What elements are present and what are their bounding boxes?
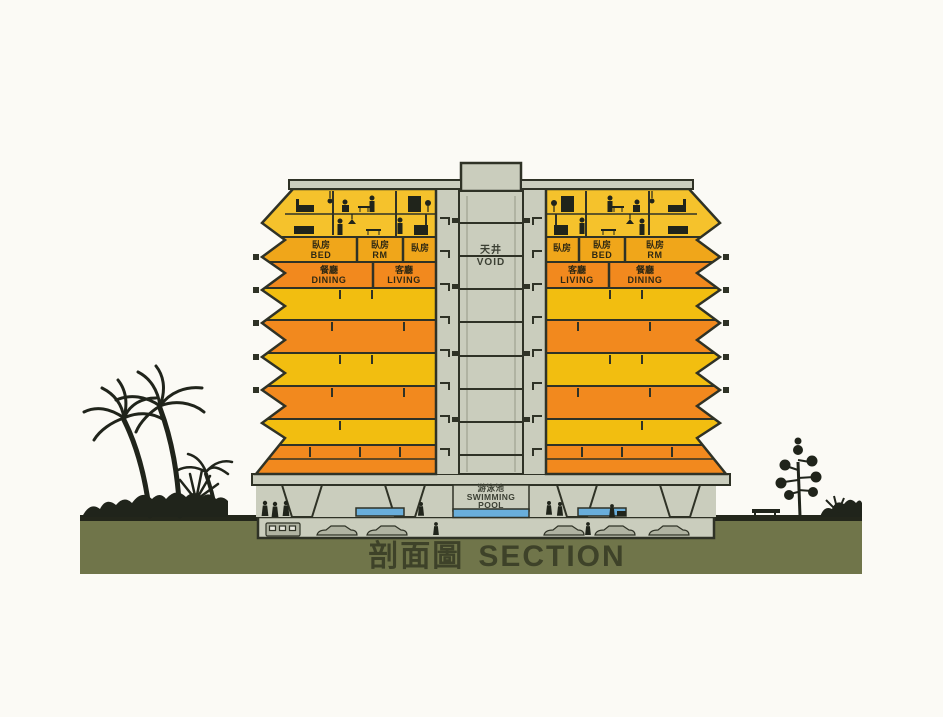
room-label: BED	[592, 250, 613, 260]
pool-label-en2: POOL	[478, 500, 504, 510]
room-label: 臥房	[646, 239, 664, 250]
left-wing	[244, 180, 461, 474]
room-label: 臥房	[593, 239, 611, 250]
void-label-en: VOID	[477, 257, 505, 268]
room-label: DINING	[311, 275, 346, 285]
pool-water-main	[453, 509, 529, 518]
section-drawing-canvas: 游泳池 SWIMMING POOL 天井 VOID	[0, 0, 943, 717]
room-label: RM	[647, 250, 662, 260]
core-top-block	[461, 163, 521, 191]
room-label: RM	[372, 250, 387, 260]
void-label: 天井 VOID	[477, 243, 505, 268]
room-label: LIVING	[560, 275, 594, 285]
bus-silhouette	[266, 523, 300, 536]
room-label: 餐廳	[319, 264, 338, 275]
room-label: BED	[311, 250, 332, 260]
right-wing	[521, 180, 738, 474]
building-section-svg: 游泳池 SWIMMING POOL 天井 VOID	[0, 0, 943, 717]
room-label: 餐廳	[635, 264, 654, 275]
section-title-en: SECTION	[478, 540, 625, 573]
room-label: 客廳	[567, 264, 586, 275]
room-label: 臥房	[553, 242, 571, 253]
room-label: 臥房	[312, 239, 330, 250]
basement-parking	[258, 517, 714, 538]
pool-water-left	[356, 508, 404, 516]
room-label: 臥房	[371, 239, 389, 250]
section-title-zh: 剖面圖	[368, 540, 464, 573]
podium: 游泳池 SWIMMING POOL	[252, 474, 730, 518]
core-shaft: 天井 VOID	[436, 163, 546, 474]
void-label-zh: 天井	[480, 243, 502, 256]
room-label: DINING	[627, 275, 662, 285]
room-label: 臥房	[411, 242, 429, 253]
section-title: 剖面圖SECTION	[368, 540, 625, 573]
room-label: 客廳	[394, 264, 413, 275]
room-label: LIVING	[387, 275, 421, 285]
